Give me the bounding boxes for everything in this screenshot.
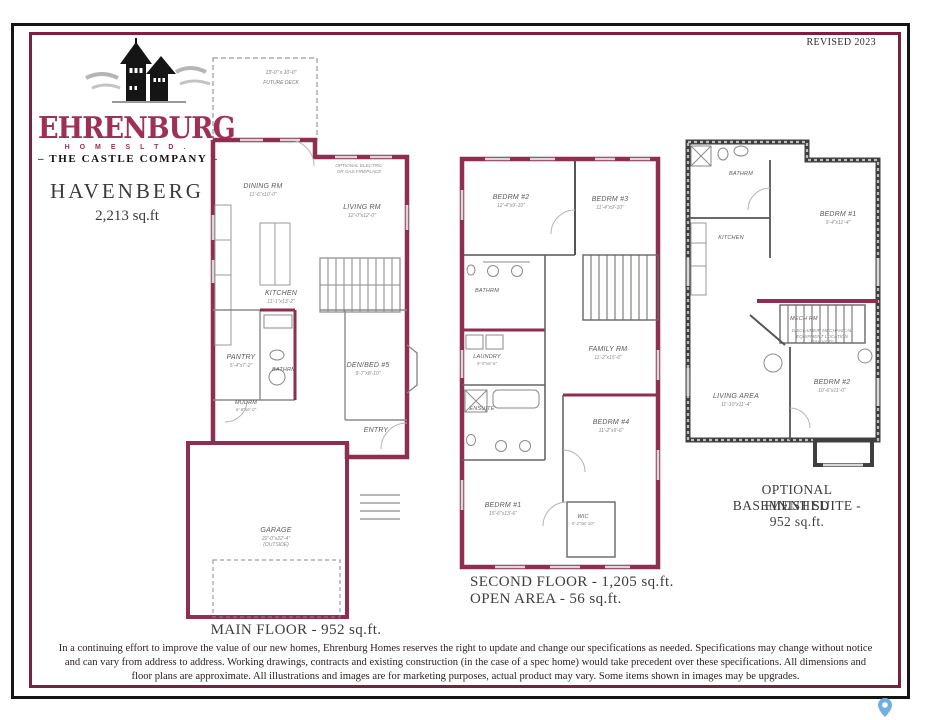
room-family-2f: FAMILY RM 11'-2"x15'-6" — [589, 346, 628, 361]
main-floor-plan — [185, 55, 425, 640]
room-laundry-2f: LAUNDRY 9'-0"x6'-6" — [473, 354, 500, 367]
room-den-bed5: DEN/BED #5 9'-7"x8'-10" — [347, 362, 390, 377]
room-bedrm2-bsmt: BEDRM #2 10'-6"x11'-0" — [814, 379, 851, 394]
room-living: LIVING RM 12'-0"x12'-0" — [343, 204, 381, 219]
room-bedrm2-2f: BEDRM #2 12'-4"x9'-10" — [493, 194, 530, 209]
room-living-bsmt: LIVING AREA 11'-10"x11'-4" — [713, 393, 759, 408]
room-bathrm-main: BATHRM — [272, 367, 296, 374]
room-ensuite-2f: ENSUITE — [469, 406, 494, 413]
room-bedrm1-2f: BEDRM #1 15'-6"x13'-6" — [485, 502, 522, 517]
room-pantry: PANTRY 5'-4"x7'-2" — [227, 354, 256, 369]
floorplan-sheet: { "frame": { "revised": "REVISED 2023" }… — [0, 0, 931, 720]
fireplace-note: OPTIONAL ELECTRIC OR GAS FIREPLACE — [332, 163, 386, 174]
room-entry: ENTRY — [364, 427, 388, 436]
mech-disclaimer-note: DISCLAIMER: MECHANICAL EQUIPMENT LOCATIO… — [791, 328, 853, 345]
room-garage: GARAGE 22'-0"x22'-4" (OUTSIDE) — [260, 527, 291, 548]
disclaimer-text: In a continuing effort to improve the va… — [58, 642, 873, 684]
second-floor-caption: SECOND FLOOR - 1,205 sq.ft. — [470, 574, 674, 591]
room-wic-2f: WIC 5'-2"x8'-10" — [572, 514, 595, 527]
location-pin-icon[interactable] — [878, 698, 892, 717]
room-bathrm-bsmt: BATHRM — [729, 171, 753, 178]
basement-plan — [683, 138, 888, 478]
room-kitchen: KITCHEN 11'-1"x13'-2" — [265, 290, 297, 305]
room-kitchen-bsmt: KITCHEN — [718, 235, 744, 242]
room-bedrm3-2f: BEDRM #3 11'-4"x9'-10" — [592, 196, 629, 211]
main-floor-caption: MAIN FLOOR - 952 sq.ft. — [211, 622, 382, 639]
room-bathrm-2f: BATHRM — [475, 288, 499, 295]
basement-caption-line2: BASEMENT SUITE - 952 sq.ft. — [730, 498, 864, 530]
revised-tag: REVISED 2023 — [806, 37, 876, 48]
room-dining: DINING RM 11'-6"x10'-0" — [243, 183, 282, 198]
room-mech-bsmt: MECH RM — [790, 316, 818, 323]
room-bedrm4-2f: BEDRM #4 11'-2"x9'-6" — [593, 419, 630, 434]
room-future-deck: 13'-0" x 10'-0" FUTURE DECK — [263, 60, 299, 86]
room-bedrm1-bsmt: BEDRM #1 9'-4"x11'-4" — [820, 211, 857, 226]
open-area-caption: OPEN AREA - 56 sq.ft. — [470, 591, 622, 608]
room-mudrm: MUDRM 6'-6"x6'-0" — [235, 400, 257, 413]
